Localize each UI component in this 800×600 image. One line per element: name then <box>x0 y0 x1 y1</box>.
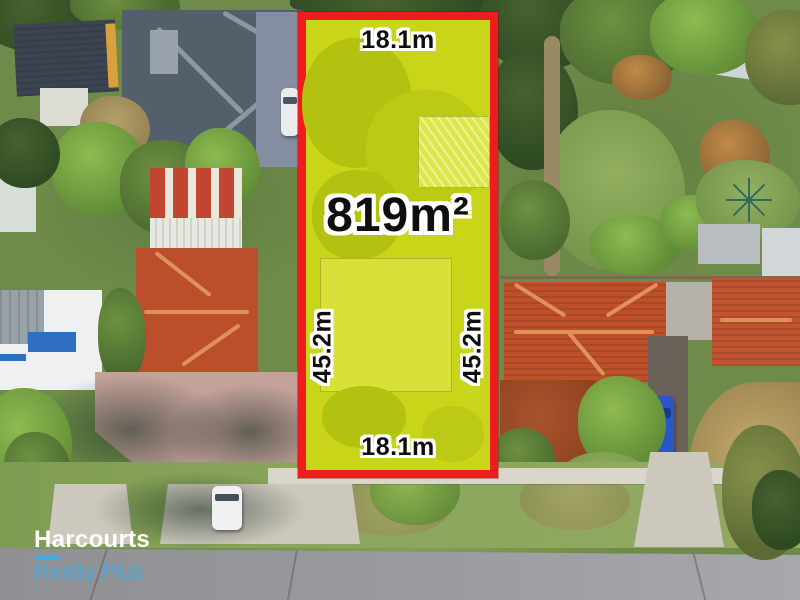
roof-ridge <box>720 318 792 322</box>
dimension-label-left: 45.2m <box>309 297 338 397</box>
blue-trim <box>28 332 76 352</box>
agency-logo: Harcourts Realty Plus <box>34 528 150 583</box>
terracotta-house-far-right <box>712 278 800 366</box>
tree-canopy <box>745 10 800 105</box>
tree-canopy <box>500 180 570 260</box>
side-path <box>666 282 712 340</box>
road-seam <box>692 549 711 600</box>
terracotta-house-left <box>136 248 258 380</box>
logo-underline <box>36 555 60 559</box>
roof-ridge <box>605 282 658 317</box>
dimension-label-right: 45.2m <box>459 297 488 397</box>
lot-boundary: 18.1m 819m² 45.2m 45.2m 18.1m <box>298 12 498 478</box>
agency-division: Realty Plus <box>34 562 150 583</box>
lot-shed-roof <box>418 116 490 188</box>
area-label: 819m² <box>306 188 490 243</box>
agency-name: Harcourts <box>34 528 150 552</box>
roof-ridge <box>513 282 566 317</box>
hedge <box>98 288 146 383</box>
road-seam <box>284 548 298 600</box>
roof-edge-trim <box>105 23 118 87</box>
roof-ridge <box>514 330 654 334</box>
dimension-label-top: 18.1m <box>306 26 490 55</box>
tree-canopy <box>612 55 672 100</box>
van-windshield <box>215 494 239 501</box>
white-van <box>212 486 242 530</box>
tree-canopy <box>650 0 760 75</box>
tree-canopy <box>0 118 60 188</box>
roof-ridge <box>181 323 241 366</box>
car-windshield <box>283 97 297 104</box>
roof-ridge <box>567 332 605 377</box>
corrugated-roof <box>150 218 242 248</box>
outbuilding-roof <box>13 19 119 96</box>
aerial-photo: 18.1m 819m² 45.2m 45.2m 18.1m Harcourts … <box>0 0 800 600</box>
roof-section-light <box>150 30 178 74</box>
white-car <box>281 88 299 136</box>
garden-shed-roof <box>698 224 760 264</box>
roof-ridge <box>144 310 249 314</box>
clothesline <box>726 178 772 222</box>
roof-ridge <box>154 251 212 297</box>
dimension-label-bottom: 18.1m <box>306 433 490 462</box>
lot-house-roof <box>320 258 452 392</box>
large-tree <box>752 470 800 550</box>
blue-trim <box>0 354 26 361</box>
terracotta-house-right <box>504 282 666 382</box>
striped-patio-roof <box>150 168 242 218</box>
